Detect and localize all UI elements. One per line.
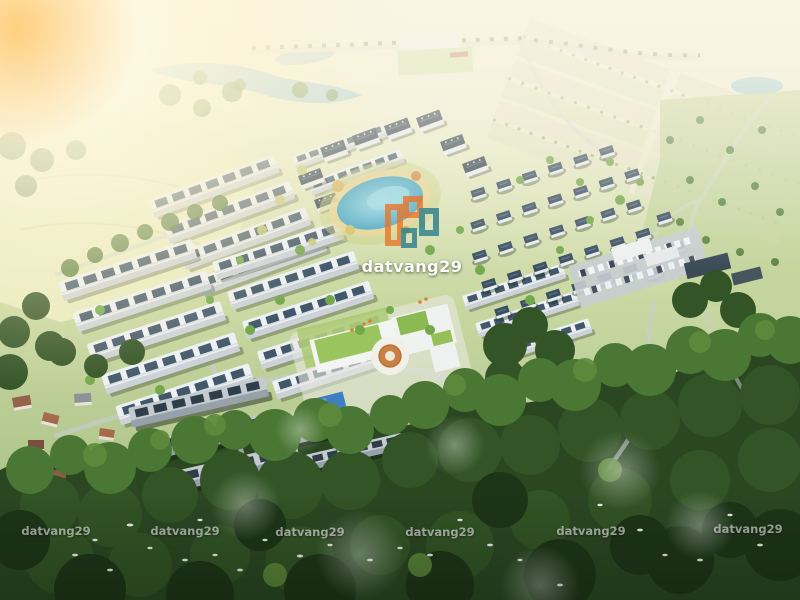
watermark-text: datvang29 <box>405 525 474 539</box>
datvang-logo-icon <box>373 196 451 254</box>
watermark-text: datvang29 <box>275 525 344 539</box>
watermark-text: datvang29 <box>150 524 219 538</box>
scene-canvas <box>0 0 800 600</box>
center-watermark-text: datvang29 <box>362 257 463 276</box>
aerial-render: datvang29 datvang29 datvang29 datvang29 … <box>0 0 800 600</box>
watermark-text: datvang29 <box>713 522 782 536</box>
center-watermark: datvang29 <box>352 196 472 276</box>
watermark-text: datvang29 <box>21 524 90 538</box>
logo-shape-teal-bottom <box>401 228 417 248</box>
watermark-text: datvang29 <box>556 524 625 538</box>
light-overlays <box>0 0 800 600</box>
logo-shape-teal-right <box>419 208 439 236</box>
